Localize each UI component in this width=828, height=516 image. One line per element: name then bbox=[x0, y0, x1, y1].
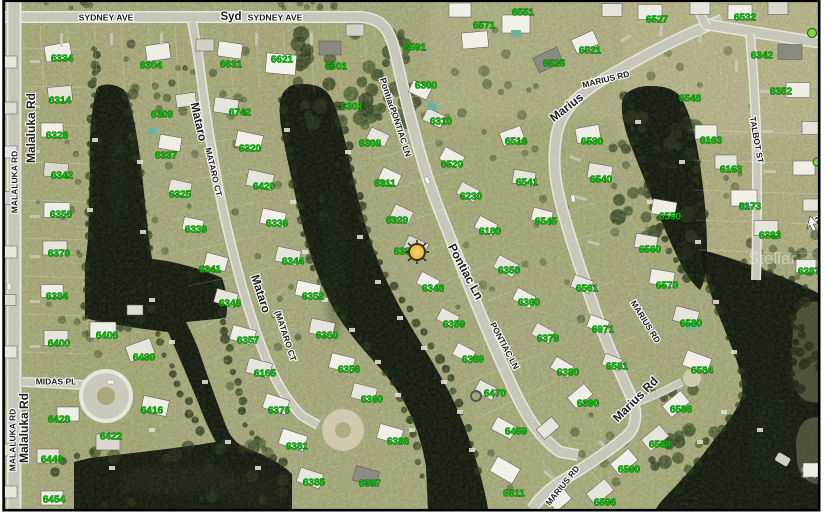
svg-text:6348: 6348 bbox=[219, 299, 242, 310]
svg-text:SYDNEY AVE: SYDNEY AVE bbox=[248, 12, 303, 22]
svg-text:6422: 6422 bbox=[100, 432, 123, 443]
svg-text:6180: 6180 bbox=[479, 227, 502, 238]
svg-text:6311: 6311 bbox=[374, 179, 396, 190]
svg-text:6370: 6370 bbox=[48, 249, 71, 260]
svg-text:6591: 6591 bbox=[404, 43, 427, 54]
svg-text:6359: 6359 bbox=[443, 320, 466, 331]
svg-text:Syd: Syd bbox=[220, 11, 241, 23]
svg-text:6336: 6336 bbox=[266, 219, 289, 230]
svg-text:6571: 6571 bbox=[473, 21, 496, 32]
svg-text:MALALUKA RD: MALALUKA RD bbox=[7, 409, 17, 471]
svg-text:6328: 6328 bbox=[46, 131, 69, 142]
svg-text:6379: 6379 bbox=[537, 334, 560, 345]
svg-text:6560: 6560 bbox=[639, 245, 662, 256]
svg-text:6350: 6350 bbox=[498, 266, 521, 277]
svg-text:6230: 6230 bbox=[460, 192, 483, 203]
svg-text:6163: 6163 bbox=[720, 165, 743, 176]
svg-text:MALALUKA RD: MALALUKA RD bbox=[9, 151, 19, 213]
svg-text:6309: 6309 bbox=[151, 110, 174, 121]
svg-text:6344: 6344 bbox=[282, 257, 305, 268]
svg-text:6611: 6611 bbox=[503, 489, 525, 500]
svg-text:6525: 6525 bbox=[543, 59, 566, 70]
svg-text:6342: 6342 bbox=[751, 51, 774, 62]
svg-text:6314: 6314 bbox=[49, 96, 72, 107]
svg-text:6380: 6380 bbox=[557, 368, 580, 379]
svg-text:6334: 6334 bbox=[51, 54, 74, 65]
svg-text:6440: 6440 bbox=[41, 455, 64, 466]
svg-text:6596: 6596 bbox=[594, 498, 617, 509]
svg-text:6329: 6329 bbox=[386, 216, 409, 227]
svg-text:6308: 6308 bbox=[359, 139, 382, 150]
svg-text:6360: 6360 bbox=[518, 298, 541, 309]
svg-text:6341: 6341 bbox=[199, 265, 222, 276]
svg-text:6381: 6381 bbox=[286, 442, 309, 453]
svg-text:Malaluka Rd: Malaluka Rd bbox=[17, 393, 31, 463]
svg-text:6621: 6621 bbox=[271, 55, 294, 66]
svg-text:6339: 6339 bbox=[185, 225, 208, 236]
svg-text:6357: 6357 bbox=[237, 336, 260, 347]
svg-text:6580: 6580 bbox=[680, 319, 703, 330]
svg-text:6385: 6385 bbox=[303, 478, 326, 489]
svg-text:6590: 6590 bbox=[618, 465, 641, 476]
svg-text:6742: 6742 bbox=[229, 108, 252, 119]
svg-text:6320: 6320 bbox=[239, 144, 262, 155]
svg-text:6470: 6470 bbox=[484, 389, 507, 400]
svg-text:6601: 6601 bbox=[325, 62, 348, 73]
svg-text:6454: 6454 bbox=[43, 495, 66, 506]
svg-text:6173: 6173 bbox=[739, 202, 762, 213]
svg-text:6550: 6550 bbox=[659, 212, 682, 223]
svg-text:6390: 6390 bbox=[577, 399, 600, 410]
svg-text:6356: 6356 bbox=[338, 365, 361, 376]
svg-text:6369: 6369 bbox=[462, 355, 485, 366]
svg-text:6352: 6352 bbox=[770, 87, 793, 98]
svg-text:6561: 6561 bbox=[576, 284, 599, 295]
svg-text:6360: 6360 bbox=[316, 331, 339, 342]
svg-text:6388: 6388 bbox=[387, 437, 410, 448]
svg-text:6360: 6360 bbox=[361, 395, 384, 406]
svg-text:6430: 6430 bbox=[133, 353, 156, 364]
svg-text:6631: 6631 bbox=[220, 60, 243, 71]
svg-text:6551: 6551 bbox=[512, 8, 535, 19]
svg-text:6527: 6527 bbox=[646, 15, 669, 26]
svg-text:6971: 6971 bbox=[592, 325, 615, 336]
svg-text:6387: 6387 bbox=[798, 267, 821, 278]
svg-text:SYDNEY AVE: SYDNEY AVE bbox=[79, 12, 134, 22]
svg-text:6541: 6541 bbox=[516, 178, 539, 189]
svg-text:6397: 6397 bbox=[359, 479, 382, 490]
svg-text:6588: 6588 bbox=[649, 440, 672, 451]
svg-text:6337: 6337 bbox=[155, 151, 178, 162]
svg-text:6300: 6300 bbox=[415, 81, 438, 92]
svg-text:6584: 6584 bbox=[691, 366, 714, 377]
svg-text:6301: 6301 bbox=[341, 102, 364, 113]
svg-text:Malaluka Rd: Malaluka Rd bbox=[24, 93, 38, 163]
svg-text:6352: 6352 bbox=[302, 292, 325, 303]
svg-text:6420: 6420 bbox=[253, 182, 276, 193]
svg-text:6532: 6532 bbox=[734, 13, 757, 24]
svg-text:6406: 6406 bbox=[96, 331, 119, 342]
svg-text:6530: 6530 bbox=[581, 137, 604, 148]
svg-text:6342: 6342 bbox=[51, 171, 74, 182]
svg-text:6376: 6376 bbox=[268, 406, 291, 417]
svg-text:6163: 6163 bbox=[700, 136, 723, 147]
svg-text:6310: 6310 bbox=[430, 117, 453, 128]
svg-text:6586: 6586 bbox=[670, 405, 693, 416]
svg-text:6348: 6348 bbox=[422, 284, 445, 295]
svg-text:6428: 6428 bbox=[48, 415, 71, 426]
svg-text:6356: 6356 bbox=[50, 210, 73, 221]
svg-text:6459: 6459 bbox=[505, 427, 528, 438]
svg-text:Stellar: Stellar bbox=[748, 249, 797, 268]
svg-text:6383: 6383 bbox=[759, 231, 782, 242]
svg-text:6165: 6165 bbox=[254, 369, 277, 380]
svg-text:6521: 6521 bbox=[579, 46, 602, 57]
svg-text:6416: 6416 bbox=[141, 406, 164, 417]
svg-text:6545: 6545 bbox=[535, 217, 558, 228]
svg-text:6548: 6548 bbox=[679, 94, 702, 105]
svg-text:6384: 6384 bbox=[46, 292, 69, 303]
svg-text:6520: 6520 bbox=[441, 160, 464, 171]
svg-text:6540: 6540 bbox=[590, 175, 613, 186]
svg-text:6325: 6325 bbox=[169, 190, 192, 201]
svg-text:6581: 6581 bbox=[606, 362, 629, 373]
svg-text:6304: 6304 bbox=[140, 61, 163, 72]
svg-text:6570: 6570 bbox=[656, 281, 679, 292]
svg-text:MIDAS PL: MIDAS PL bbox=[36, 376, 77, 386]
svg-text:6400: 6400 bbox=[48, 339, 71, 350]
svg-text:6516: 6516 bbox=[505, 137, 528, 148]
